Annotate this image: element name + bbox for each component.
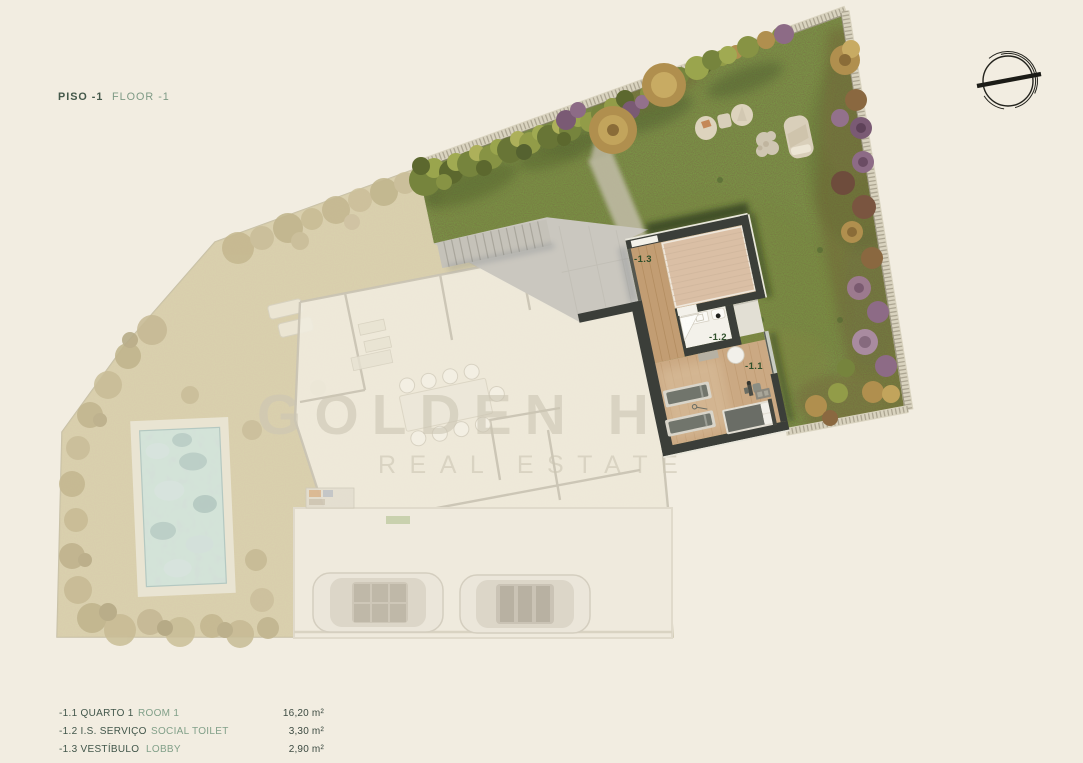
svg-text:FLOOR -1: FLOOR -1: [112, 91, 170, 103]
svg-text:REAL ESTATE: REAL ESTATE: [378, 451, 691, 479]
svg-text:-1.3 VESTÍBULO: -1.3 VESTÍBULO: [59, 742, 139, 755]
svg-text:16,20 m²: 16,20 m²: [283, 708, 325, 719]
svg-text:-1.1 QUARTO 1: -1.1 QUARTO 1: [59, 708, 134, 719]
svg-text:GOLDEN HI: GOLDEN HI: [257, 383, 691, 447]
svg-text:-1.2 I.S. SERVIÇO: -1.2 I.S. SERVIÇO: [59, 726, 147, 737]
svg-text:SOCIAL TOILET: SOCIAL TOILET: [151, 726, 229, 737]
svg-text:LOBBY: LOBBY: [146, 744, 181, 755]
svg-text:-1.1: -1.1: [745, 361, 763, 372]
svg-text:ROOM 1: ROOM 1: [138, 708, 179, 719]
svg-text:-1.2: -1.2: [709, 332, 727, 343]
svg-text:2,90 m²: 2,90 m²: [289, 744, 325, 755]
svg-text:PISO -1: PISO -1: [58, 91, 103, 103]
svg-text:-1.3: -1.3: [634, 254, 652, 265]
svg-text:3,30 m²: 3,30 m²: [289, 726, 325, 737]
